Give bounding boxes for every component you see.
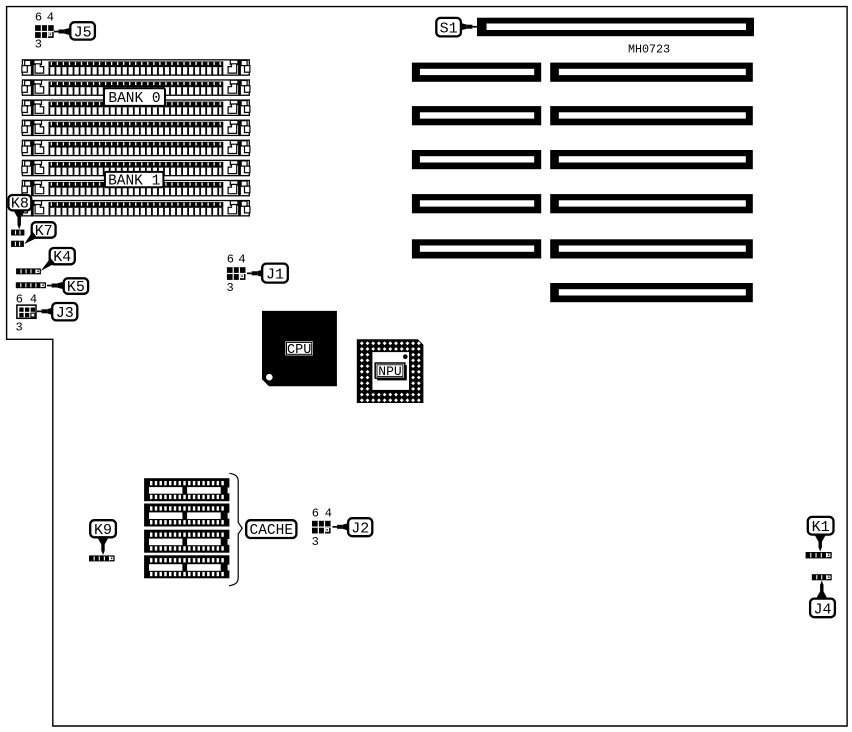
svg-text:3: 3 — [312, 535, 319, 549]
svg-text:MH0723: MH0723 — [628, 42, 670, 56]
svg-text:4: 4 — [325, 507, 332, 521]
svg-text:4: 4 — [47, 10, 54, 24]
svg-text:3: 3 — [35, 38, 42, 52]
svg-text:NPU: NPU — [378, 364, 401, 379]
svg-text:J4: J4 — [813, 602, 831, 619]
svg-text:J5: J5 — [74, 24, 92, 41]
svg-text:K7: K7 — [35, 223, 53, 240]
svg-text:BANK 0: BANK 0 — [108, 91, 160, 107]
svg-text:3: 3 — [16, 321, 23, 335]
svg-text:CPU: CPU — [287, 343, 311, 358]
svg-text:6: 6 — [227, 253, 234, 267]
svg-text:K8: K8 — [11, 196, 29, 213]
svg-text:4: 4 — [238, 253, 245, 267]
svg-text:K9: K9 — [94, 522, 112, 539]
svg-text:J1: J1 — [266, 267, 284, 284]
svg-text:J2: J2 — [351, 521, 369, 538]
svg-text:6: 6 — [35, 10, 42, 24]
svg-text:K4: K4 — [53, 249, 71, 266]
svg-text:BANK 1: BANK 1 — [108, 173, 160, 189]
svg-text:S1: S1 — [440, 21, 458, 38]
svg-text:CACHE: CACHE — [250, 523, 294, 539]
svg-text:K5: K5 — [67, 279, 85, 296]
svg-text:6: 6 — [312, 507, 319, 521]
svg-text:3: 3 — [227, 281, 234, 295]
svg-text:K1: K1 — [812, 519, 830, 536]
svg-text:J3: J3 — [56, 305, 74, 322]
